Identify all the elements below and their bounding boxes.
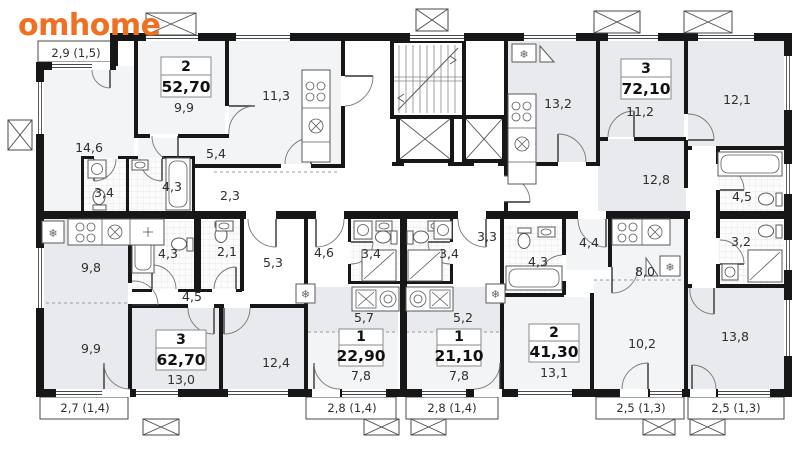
room-label: 9,9 <box>174 100 194 115</box>
vent-shaft-icon <box>684 11 732 33</box>
svg-text:❄: ❄ <box>301 288 310 301</box>
sink-icon <box>538 227 555 237</box>
brand-logo[interactable]: omhome <box>18 8 160 43</box>
svg-text:1: 1 <box>356 329 366 345</box>
room-label: 13,1 <box>540 365 568 380</box>
toilet-icon <box>407 231 429 244</box>
room-label: 4,6 <box>314 245 334 260</box>
svg-text:72,10: 72,10 <box>621 80 670 98</box>
toilet-icon <box>518 228 531 249</box>
staircase <box>392 41 464 117</box>
vent-shaft-icon <box>416 9 448 31</box>
room-label: 5,4 <box>206 146 226 161</box>
vent-shaft-icon <box>364 419 399 435</box>
bathtub-icon <box>718 152 782 176</box>
room-label: 3,4 <box>361 246 381 261</box>
room-label: 14,6 <box>75 140 103 155</box>
kitchen-icon <box>612 219 670 245</box>
balcony-label: 2,8 (1,4) <box>327 401 376 415</box>
room-label: 5,2 <box>453 310 473 325</box>
room-label: 3,4 <box>94 185 114 200</box>
balcony-label: 2,5 (1,3) <box>711 401 760 415</box>
svg-text:2: 2 <box>181 59 191 75</box>
ac-unit-icon: ❄ <box>486 284 505 303</box>
svg-text:1: 1 <box>454 329 464 345</box>
room-label: 5,3 <box>263 255 283 270</box>
svg-text:❄: ❄ <box>519 48 528 61</box>
room-label: 8,0 <box>635 264 655 279</box>
room-label: 4,3 <box>158 246 178 261</box>
sink-icon <box>376 221 392 231</box>
room-label: 7,8 <box>449 368 469 383</box>
svg-text:21,10: 21,10 <box>434 347 483 365</box>
room-label: 4,5 <box>732 189 752 204</box>
room-label: 11,2 <box>626 104 654 119</box>
vent-shaft-icon <box>8 120 32 150</box>
room-label: 10,2 <box>628 336 656 351</box>
kitchen-icon <box>302 70 330 162</box>
apartment-card-21-10[interactable]: 1 21,10 <box>434 329 483 366</box>
room-label: 12,8 <box>642 172 670 187</box>
apartment-card-41-30[interactable]: 2 41,30 <box>529 324 579 362</box>
svg-text:2: 2 <box>549 325 559 341</box>
room-label: 13,8 <box>721 329 749 344</box>
room-label: 3,3 <box>477 229 497 244</box>
svg-text:41,30: 41,30 <box>529 343 578 361</box>
toilet-icon <box>759 225 783 238</box>
room-label: 4,4 <box>579 235 599 250</box>
kitchen-icon <box>508 94 536 184</box>
room-label: 4,3 <box>162 179 182 194</box>
sink-icon <box>216 221 233 231</box>
shower-icon <box>748 250 782 282</box>
room-label: 2,3 <box>220 188 240 203</box>
room-label: 2,1 <box>217 244 237 259</box>
washer-icon <box>722 264 738 280</box>
kitchen-icon <box>68 219 164 245</box>
room-label: 7,8 <box>351 368 371 383</box>
vent-shaft-icon <box>690 419 725 435</box>
toilet-icon <box>376 231 398 244</box>
bathtub-icon <box>506 266 562 290</box>
shower-icon <box>408 250 442 281</box>
svg-text:3: 3 <box>641 61 651 77</box>
svg-text:3: 3 <box>176 332 186 348</box>
balcony-label: 2,9 (1,5) <box>51 46 100 60</box>
room-label: 9,8 <box>81 260 101 275</box>
apartment-card-22-90[interactable]: 1 22,90 <box>336 329 385 366</box>
balcony-label: 2,8 (1,4) <box>427 401 476 415</box>
vent-shaft-icon <box>594 11 640 33</box>
ac-unit-icon: ❄ <box>296 284 315 303</box>
svg-text:❄: ❄ <box>491 288 500 301</box>
svg-text:52,70: 52,70 <box>161 78 210 96</box>
elevators <box>398 117 504 161</box>
apartment-card-72-10[interactable]: 3 72,10 <box>621 59 671 99</box>
floor-plan-svg: ❄ ❄ ❄ ❄ ❄ 14,6 9,9 11,3 5,4 3,4 4,3 <box>0 0 800 460</box>
kitchen-icon <box>352 287 399 311</box>
washer-icon <box>88 160 106 178</box>
washer-icon <box>354 221 372 239</box>
room-label: 4,3 <box>528 254 548 269</box>
room-label: 13,2 <box>544 96 572 111</box>
svg-text:22,90: 22,90 <box>336 347 385 365</box>
room-label: 11,3 <box>262 88 290 103</box>
svg-text:❄: ❄ <box>665 261 674 274</box>
balcony-label: 2,5 (1,3) <box>616 401 665 415</box>
vent-shaft-icon <box>143 419 179 435</box>
room-label: 12,4 <box>262 355 290 370</box>
svg-text:❄: ❄ <box>48 227 57 240</box>
vent-shaft-icon <box>411 419 446 435</box>
room-label: 13,0 <box>167 372 195 387</box>
room-label: 9,9 <box>81 341 101 356</box>
room-label: 3,2 <box>731 234 751 249</box>
room-label: 3,4 <box>439 246 459 261</box>
balcony-label: 2,7 (1,4) <box>60 401 109 415</box>
vent-shaft-icon <box>643 419 675 435</box>
svg-text:62,70: 62,70 <box>156 351 205 369</box>
apartment-card-52-70[interactable]: 2 52,70 <box>161 57 211 97</box>
room-label: 12,1 <box>723 92 751 107</box>
apartment-card-62-70[interactable]: 3 62,70 <box>156 330 206 370</box>
kitchen-icon <box>406 287 453 311</box>
room-label: 5,7 <box>354 310 374 325</box>
washer-icon <box>434 221 452 239</box>
ac-unit-icon: ❄ <box>42 221 64 243</box>
floor-plan-page: omhome <box>0 0 800 460</box>
sink-icon <box>132 160 148 170</box>
toilet-icon <box>759 193 783 206</box>
room-label: 4,5 <box>182 289 202 304</box>
